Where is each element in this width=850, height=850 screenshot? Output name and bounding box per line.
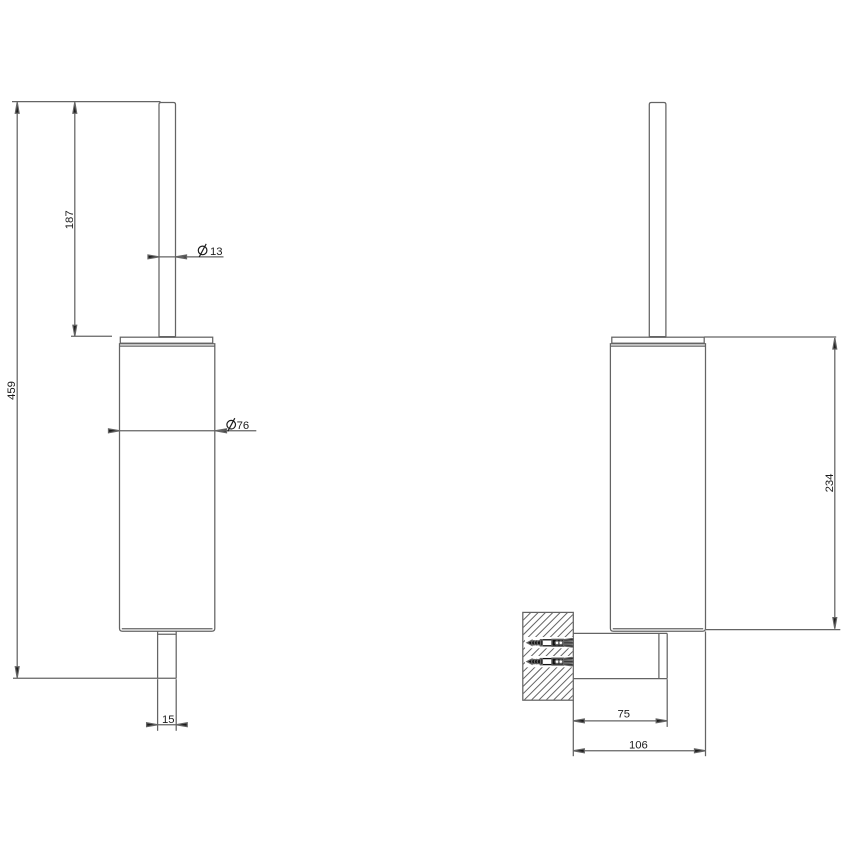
svg-text:459: 459 [6,381,18,400]
svg-text:15: 15 [162,714,175,726]
svg-text:13: 13 [210,246,223,258]
svg-text:106: 106 [629,739,648,751]
svg-text:75: 75 [618,709,631,721]
svg-text:234: 234 [824,474,836,493]
svg-text:76: 76 [237,420,250,432]
svg-text:187: 187 [64,210,76,229]
